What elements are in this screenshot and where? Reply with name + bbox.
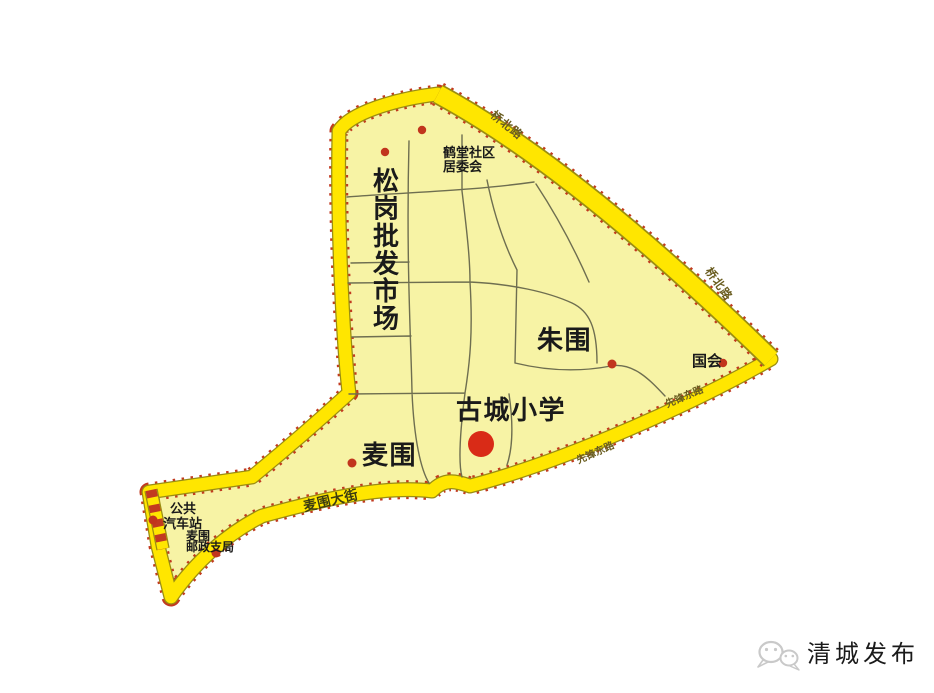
poi-dot-hetang xyxy=(418,126,426,134)
label-hetang-committee-line2: 居委会 xyxy=(443,159,483,175)
label-maiwei: 麦围 xyxy=(362,441,417,471)
poi-dot-bus-station xyxy=(149,516,158,525)
poi-dot-maiwei xyxy=(348,459,357,468)
map-canvas: 松岗批发市场 鹤堂社区 居委会 朱围 古城小学 麦围 国会 公共 汽车站 麦围 … xyxy=(0,0,934,693)
label-bus-station-line1: 公共 xyxy=(170,501,196,517)
label-zhuwei: 朱围 xyxy=(537,326,592,356)
watermark-text: 清城发布 xyxy=(807,640,919,668)
poi-dot-zhuwei xyxy=(608,360,617,369)
district-map: 松岗批发市场 鹤堂社区 居委会 朱围 古城小学 麦围 国会 公共 汽车站 麦围 … xyxy=(0,0,934,693)
label-songgang-market: 松岗批发市场 xyxy=(372,167,399,335)
watermark: 清城发布 xyxy=(758,640,919,670)
label-hetang-committee-line1: 鹤堂社区 xyxy=(443,145,495,161)
label-gucheng-school: 古城小学 xyxy=(456,395,566,426)
wechat-icon xyxy=(758,642,799,670)
label-post-office-line2: 邮政支局 xyxy=(186,539,234,554)
label-guohui: 国会 xyxy=(692,352,722,370)
poi-dot-gucheng-school xyxy=(468,431,494,457)
poi-dot-market xyxy=(381,148,389,156)
